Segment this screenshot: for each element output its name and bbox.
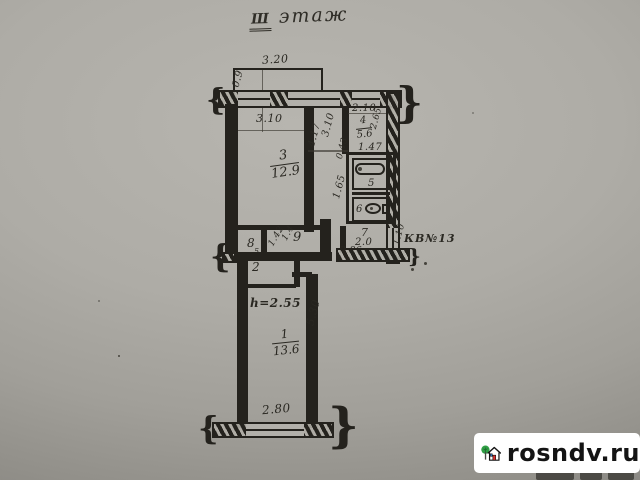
paper-speck xyxy=(472,112,474,114)
wall-bath-divider xyxy=(352,192,390,195)
paper-speck xyxy=(118,355,120,357)
room3-label: 3 12.9 xyxy=(268,147,301,181)
room1-label: 1 13.6 xyxy=(271,327,301,358)
toilet-tank-icon xyxy=(382,204,388,214)
apartment-number-label: КВ№13 xyxy=(404,233,456,244)
dim-line-room3-width xyxy=(238,130,304,131)
wall-mid-right-hatched xyxy=(336,248,410,262)
paper-speck xyxy=(98,300,100,302)
dim-room3-width: 3.10 xyxy=(256,113,283,124)
room6-number: 6 xyxy=(356,205,363,215)
dim-hall-length: 3.10 xyxy=(321,112,337,138)
wall-room1-right xyxy=(306,274,318,428)
watermark-site-text: rosndv.ru xyxy=(507,439,640,467)
wall-left-exterior xyxy=(225,104,238,254)
room2-number: 2 xyxy=(252,261,260,273)
room3-area: 12.9 xyxy=(270,163,301,182)
dim-balcony-top-width: 3.20 xyxy=(262,53,289,66)
wall-mid-main xyxy=(234,252,332,261)
dim-bath-width: 1.47 xyxy=(358,143,382,153)
room1-area: 13.6 xyxy=(272,341,300,357)
ceiling-height-note: h=2.55 xyxy=(250,297,301,309)
bathtub-drain-icon xyxy=(358,167,362,171)
wall-break-brace-bottom-right: } xyxy=(328,402,359,450)
toilet-bowl-icon xyxy=(365,203,381,214)
dim-balcony-bottom-width: 2.80 xyxy=(262,402,292,416)
wall-break-brace-top-right: } xyxy=(396,82,423,124)
wall-room1-left xyxy=(237,261,248,428)
room5-number: 5 xyxy=(368,179,375,189)
ink-dot xyxy=(424,262,427,265)
wall-room8-room9 xyxy=(261,225,267,255)
window-room3 xyxy=(288,90,340,108)
window-balcony-door xyxy=(238,90,270,108)
floor-plan-photo: Шэтаж 3.20 0.9 } { 3.10 3 12.9 4.17 3.10… xyxy=(0,0,640,480)
wall-room9-right xyxy=(320,219,331,255)
window-room1 xyxy=(246,422,304,438)
room4-area: 5.6 xyxy=(356,128,373,141)
wall-break-brace-mid-right: } xyxy=(408,246,421,266)
room9-number: 9 xyxy=(293,231,302,244)
wall-room2-bottom xyxy=(240,284,296,288)
wall-break-brace-bottom-left: { xyxy=(198,412,219,444)
floor-plan-drawing: 3.20 0.9 } { 3.10 3 12.9 4.17 3.10 2.10 … xyxy=(0,0,640,480)
house-tree-icon xyxy=(481,437,501,469)
toilet-dot-icon xyxy=(370,207,373,210)
paper-speck xyxy=(411,268,414,271)
wall-break-brace-top-left: { xyxy=(206,86,225,116)
watermark-badge: rosndv.ru xyxy=(474,433,640,473)
